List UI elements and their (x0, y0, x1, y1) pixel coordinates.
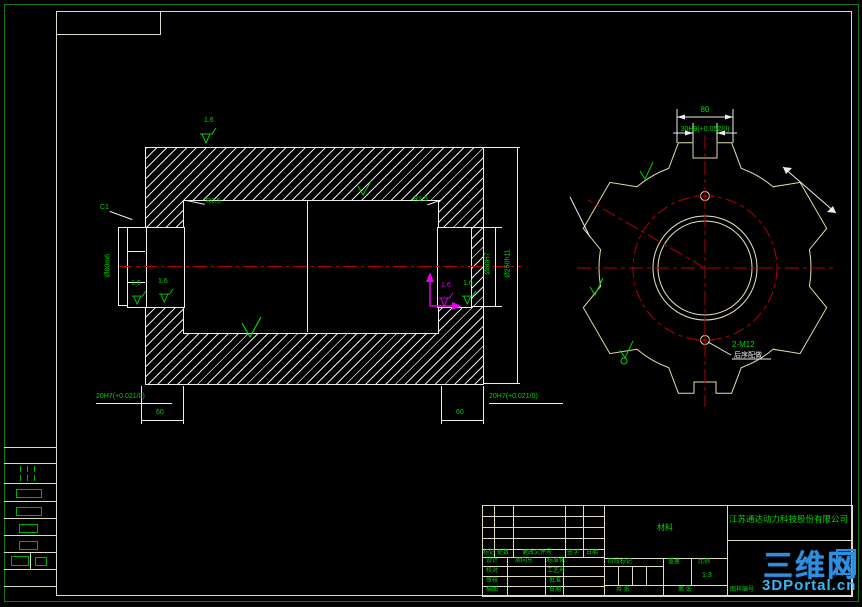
strip-tick (27, 466, 28, 472)
ext-line (141, 386, 142, 424)
tb-label: 工艺号 (547, 568, 565, 575)
roughness-check-icon (240, 315, 264, 339)
roughness-icon (461, 289, 477, 305)
table-line (632, 566, 633, 585)
dim-line (517, 147, 518, 383)
holes-callout: 2-M12 (732, 340, 755, 349)
sheet-no: 第 张 (678, 587, 692, 594)
ext-line (471, 306, 502, 307)
roughness-icon (158, 287, 174, 303)
strip-line (4, 463, 57, 464)
table-line (691, 558, 692, 585)
rev-header: 标记 (483, 550, 495, 557)
dim-dia-bore: Ø80H7 (485, 242, 492, 286)
dim-dia-outer: Ø250h11 (505, 242, 512, 286)
dim-line (118, 227, 119, 306)
dim-line (141, 420, 184, 421)
ext-line (483, 386, 484, 424)
strip-box (19, 541, 38, 550)
ext-line (471, 227, 502, 228)
strip-tick (20, 475, 21, 481)
material-label: 材料 (657, 524, 673, 532)
table-line (646, 566, 647, 585)
section-bore (183, 200, 439, 334)
strip-tick (34, 475, 35, 481)
scale-value: 1:3 (702, 572, 712, 580)
company-name: 江苏通达动力科技股份有限公司 (729, 515, 848, 523)
strip-line (4, 501, 57, 502)
dim-slot: 30H9(+0.052/0) (681, 126, 730, 133)
tb-label: 描图 (486, 587, 498, 594)
tb-label: 审核 (486, 578, 498, 585)
stage-label: 阶段标记 (608, 559, 632, 566)
table-line (483, 576, 604, 577)
roughness-value: 1.6 (158, 278, 168, 286)
table-line (604, 505, 605, 595)
fillet-left: R0.5 (206, 198, 221, 206)
strip-tick (34, 466, 35, 472)
tb-label: 标准化 (547, 558, 565, 565)
ext-line (441, 386, 442, 424)
keyway-note-left: 20H7(+0.021/0) (96, 393, 145, 401)
table-line (583, 505, 584, 557)
table-line (513, 505, 514, 557)
strip-box (11, 556, 29, 566)
roughness-value: 1.6 (463, 280, 473, 288)
table-line (483, 557, 604, 558)
roughness-icon (131, 289, 147, 305)
dim-length-right: 60 (456, 409, 464, 417)
strip-box (16, 489, 42, 498)
chamfer-note: C1 (100, 204, 109, 212)
ext-line (119, 227, 127, 228)
strip-line (4, 518, 57, 519)
table-line (604, 585, 727, 586)
weight-label: 重量 (668, 559, 680, 566)
rev-header: 签字 (567, 550, 579, 557)
tb-label: 批准 (549, 578, 561, 585)
tb-value: 周向东 (515, 558, 533, 565)
strip-box (35, 557, 47, 566)
strip-line (4, 586, 57, 587)
table-line (483, 516, 604, 517)
table-line (663, 558, 664, 595)
strip-tick (20, 466, 21, 472)
strip-line (4, 447, 57, 448)
ext-line (119, 305, 127, 306)
doc-no-label: 图样编号 (730, 587, 754, 594)
tb-label: 设计 (486, 558, 498, 565)
watermark-badge: 技术 (836, 549, 856, 575)
sheet-total: 共 张 (616, 587, 630, 594)
gear-view: 80 30H9(+0.052/0) 2-M12 后序配做 (555, 95, 855, 440)
roughness-check-icon (357, 180, 373, 196)
strip-line (4, 569, 57, 570)
dim-length-left: 60 (156, 409, 164, 417)
leader-line (96, 403, 172, 404)
tb-label: 校对 (486, 568, 498, 575)
roughness-value: 1.6 (131, 280, 141, 288)
dim-line (495, 227, 496, 306)
holes-note: 后序配做 (734, 350, 762, 359)
strip-box (16, 507, 42, 516)
scale-label: 比例 (698, 559, 710, 566)
table-line (483, 527, 604, 528)
table-line (507, 557, 508, 595)
ext-line (483, 383, 520, 384)
roughness-value: 1.6 (204, 117, 214, 125)
ucs-icon (420, 266, 462, 312)
strip-box (19, 524, 38, 533)
frame-corner-box (56, 11, 161, 35)
rev-header: 日期 (586, 550, 598, 557)
table-line (545, 557, 546, 595)
ext-line (483, 147, 520, 148)
rev-header: 处数 (497, 550, 509, 557)
dim-width-top: 80 (701, 105, 710, 114)
watermark-site: 3DPortal.cn (762, 577, 856, 594)
keyway-note-right: 20H7(+0.021/0) (489, 393, 538, 401)
dim-line (441, 420, 484, 421)
strip-line (4, 483, 57, 484)
strip-line (30, 552, 31, 569)
tb-label: 日期 (549, 587, 561, 594)
table-line (565, 505, 566, 557)
table-line (483, 586, 604, 587)
table-line (727, 505, 728, 595)
strip-tick (27, 475, 28, 481)
ext-line (183, 386, 184, 424)
strip-line (4, 535, 57, 536)
table-line (604, 566, 663, 567)
roughness-icon (199, 126, 217, 144)
cad-drawing-canvas: Ø80m6 Ø80H7 Ø250h11 60 60 20H7(+0.021/0)… (0, 0, 862, 607)
hub-step-line (128, 251, 145, 252)
rev-header: 更改文件号 (522, 550, 552, 557)
table-line (483, 538, 604, 539)
fillet-right: R1.5 (413, 196, 428, 204)
table-line (483, 566, 604, 567)
dim-dia-hub: Ø80m6 (105, 244, 112, 288)
leader-line (489, 403, 563, 404)
table-line (618, 566, 619, 585)
